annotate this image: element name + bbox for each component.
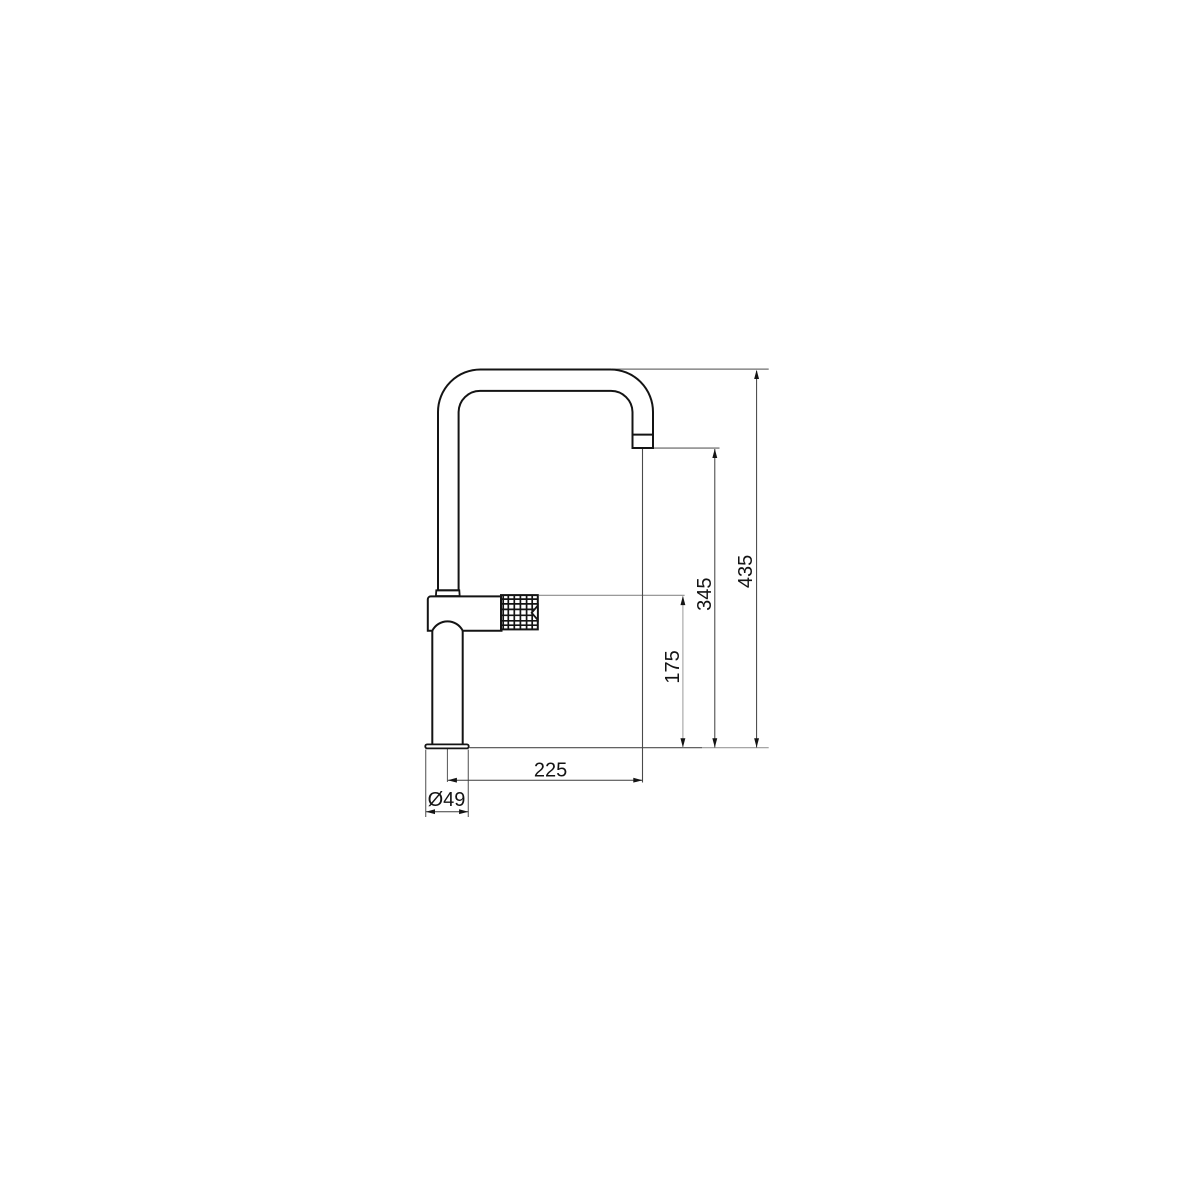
svg-text:435: 435: [735, 555, 757, 588]
svg-text:175: 175: [662, 650, 684, 683]
svg-text:345: 345: [694, 578, 716, 611]
svg-text:225: 225: [534, 759, 567, 781]
svg-text:Ø49: Ø49: [428, 789, 466, 811]
